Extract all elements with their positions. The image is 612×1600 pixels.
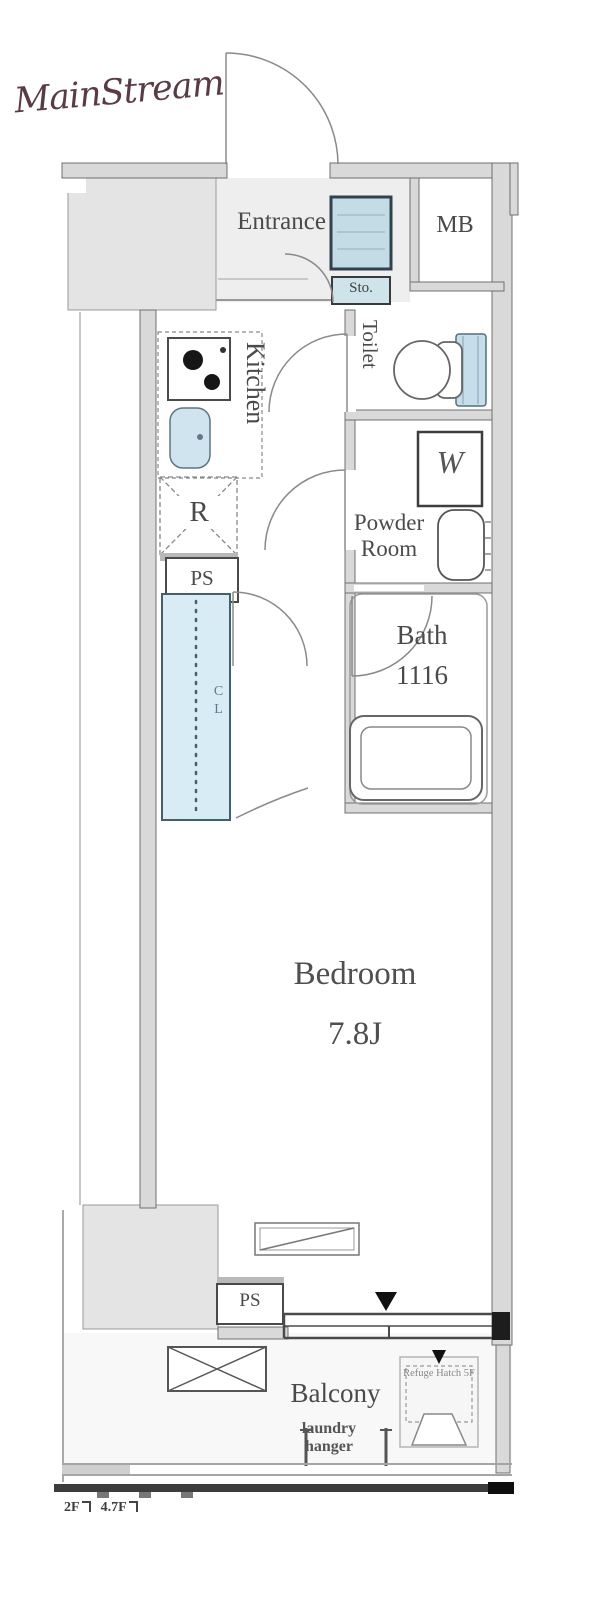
bath-size-label: 1116 <box>382 660 462 691</box>
entrance-door-arc <box>226 53 338 164</box>
bedroom-size-label: 7.8J <box>250 1016 460 1054</box>
bedroom-door-arc <box>233 592 307 666</box>
level-annotations: 2F 4.7F <box>64 1500 148 1516</box>
toilet-fixture-icon <box>394 334 486 406</box>
floor-plan: MainStream Entrance MB Sto. Kitchen Toil… <box>0 0 612 1600</box>
bath-label: Bath <box>382 620 462 651</box>
level-mark-icon <box>82 1501 91 1512</box>
powder-door-arc <box>265 470 345 550</box>
closet-label: CL <box>204 684 226 740</box>
window-end-marker <box>492 1312 510 1340</box>
refuge-hatch-label: Refuge Hatch 5F <box>402 1368 476 1381</box>
fridge-label: R <box>172 496 226 529</box>
counter-desk-icon <box>255 1223 359 1255</box>
toilet-label: Toilet <box>354 320 382 416</box>
mb-label: MB <box>420 212 490 240</box>
closet-door-arc <box>236 788 308 818</box>
entrance-label: Entrance <box>224 208 339 237</box>
level-right-label: 4.7F <box>101 1500 127 1516</box>
level-mark-icon <box>129 1501 138 1512</box>
pipe-space-lower-label: PS <box>217 1290 283 1312</box>
bedroom-label: Bedroom <box>250 956 460 994</box>
laundry-hanger-label: laundry hanger <box>288 1420 370 1455</box>
kitchen-sink-icon <box>170 408 210 468</box>
site-lines <box>63 312 80 1482</box>
gas-stove-icon <box>168 338 230 400</box>
washer-label: W <box>418 444 482 481</box>
powder-room-label: Powder Room <box>338 510 440 563</box>
storage-label: Sto. <box>332 280 390 297</box>
pipe-space-upper-label: PS <box>168 566 236 590</box>
kitchen-label: Kitchen <box>238 342 270 492</box>
balcony-label: Balcony <box>268 1378 403 1409</box>
ac-unit-icon <box>168 1347 266 1391</box>
balcony-edge <box>54 1464 514 1498</box>
direction-triangle-icon <box>375 1292 397 1311</box>
level-left-label: 2F <box>64 1500 80 1516</box>
shoe-storage-icon <box>331 197 391 269</box>
toilet-door-arc <box>269 334 347 412</box>
floor-plan-linework <box>0 0 612 1600</box>
refuge-hatch-icon <box>400 1350 478 1447</box>
washbasin-icon <box>438 510 491 580</box>
